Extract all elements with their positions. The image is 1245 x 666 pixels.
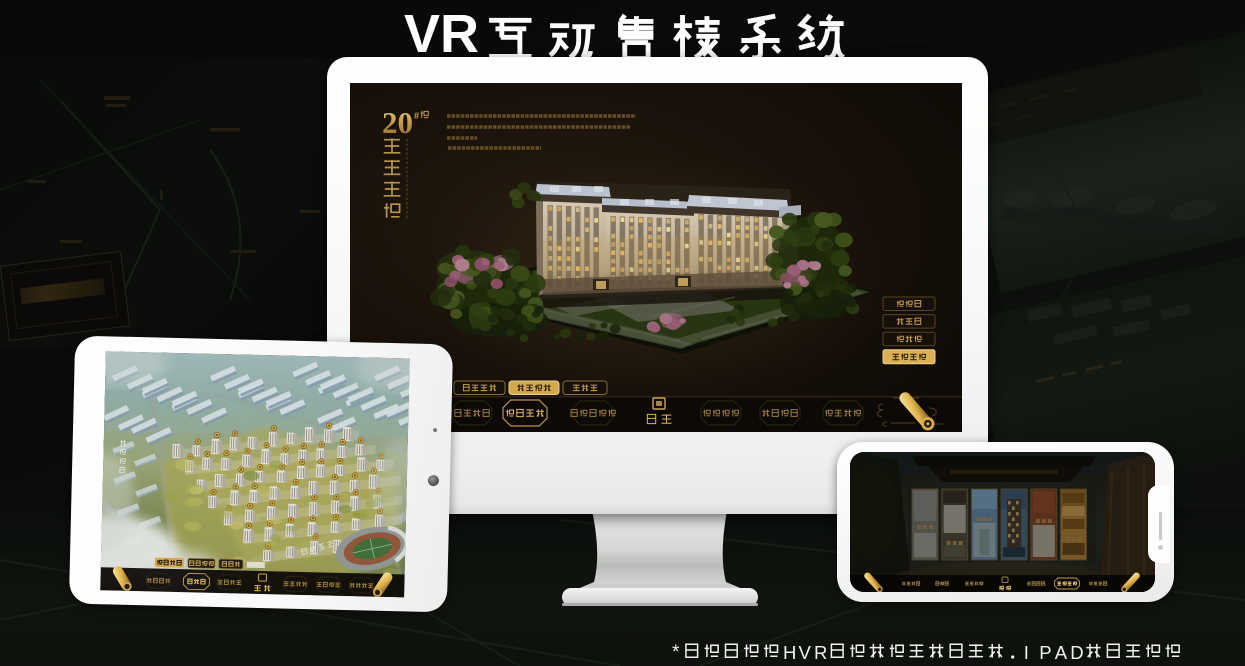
svg-text:A: A — [1055, 642, 1069, 663]
svg-text:I: I — [1024, 642, 1031, 663]
svg-text:#: # — [414, 111, 419, 122]
svg-text:P: P — [1039, 642, 1053, 663]
svg-text:V: V — [799, 642, 813, 663]
svg-text:*: * — [672, 642, 680, 663]
svg-text:H: H — [783, 642, 798, 663]
svg-text:20: 20 — [382, 105, 413, 140]
svg-text:D: D — [1070, 642, 1085, 663]
svg-text:R: R — [814, 642, 829, 663]
svg-text:VR: VR — [404, 6, 479, 58]
